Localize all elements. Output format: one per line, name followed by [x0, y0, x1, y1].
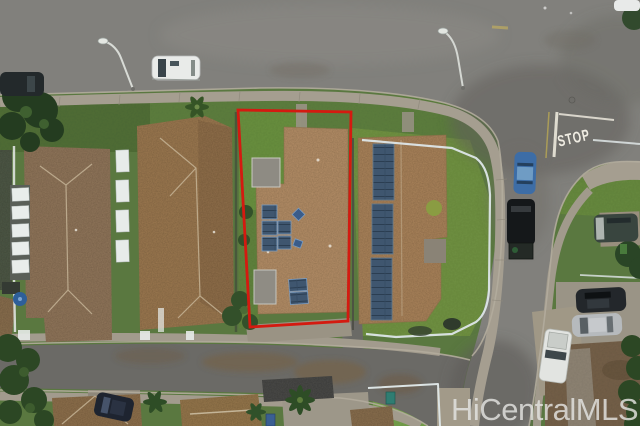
house-left-1-roof — [24, 146, 112, 342]
aerial-photo: STOP HiCentralMLS — [0, 0, 640, 426]
car-dark-top-left — [0, 72, 44, 96]
car-dark-right-driveway — [575, 287, 626, 314]
palm-bottom-1 — [285, 385, 315, 415]
car-white-top-right — [614, 0, 640, 11]
small-tree-right-yard — [426, 200, 442, 216]
watermark: HiCentralMLS — [451, 392, 638, 426]
car-dark-suv-side-street — [507, 199, 535, 259]
car-white-van-top — [152, 56, 200, 80]
aerial-scene: STOP HiCentralMLS — [0, 0, 640, 426]
dark-shrub — [443, 318, 461, 330]
solar-panels-right-house — [371, 144, 394, 320]
car-silver-right-driveway — [571, 313, 622, 338]
manhole — [569, 97, 575, 103]
car-gray-van-right — [594, 213, 639, 243]
car-blue-side-street — [513, 152, 536, 195]
right-house-gray-section — [424, 239, 446, 263]
